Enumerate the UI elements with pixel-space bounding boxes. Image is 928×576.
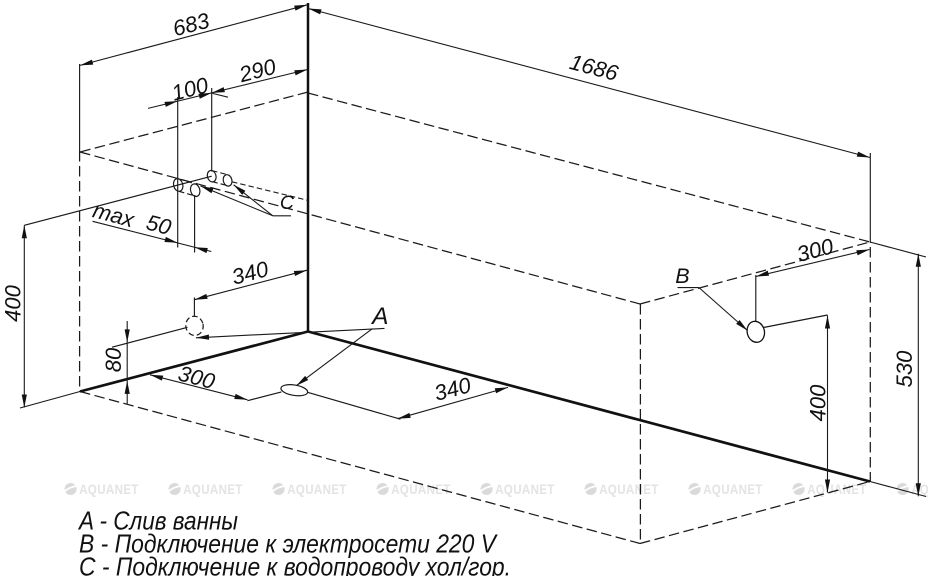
svg-text:AQUANET: AQUANET <box>183 482 243 497</box>
svg-text:400: 400 <box>805 384 830 421</box>
svg-text:340: 340 <box>229 256 272 290</box>
svg-text:100: 100 <box>169 72 212 106</box>
svg-text:A: A <box>370 303 388 330</box>
svg-text:AQUANET: AQUANET <box>495 482 555 497</box>
svg-text:AQUANET: AQUANET <box>703 482 763 497</box>
svg-text:683: 683 <box>170 8 213 42</box>
svg-text:C: C <box>280 192 295 214</box>
svg-text:B: B <box>675 264 689 288</box>
svg-text:300: 300 <box>176 360 219 394</box>
svg-text:AQUANET: AQUANET <box>79 482 139 497</box>
svg-text:290: 290 <box>236 54 280 88</box>
svg-text:max: max <box>90 197 138 232</box>
svg-text:AQUANET: AQUANET <box>287 482 347 497</box>
svg-text:1686: 1686 <box>567 49 621 86</box>
svg-text:AQUANET: AQUANET <box>599 482 659 497</box>
svg-text:80: 80 <box>101 347 126 372</box>
svg-text:400: 400 <box>1 284 26 321</box>
svg-text:C - Подключение к водопроводу: C - Подключение к водопроводу хол/гор. <box>79 551 511 576</box>
svg-text:530: 530 <box>892 350 917 387</box>
svg-text:340: 340 <box>432 372 475 406</box>
svg-text:300: 300 <box>794 233 837 267</box>
